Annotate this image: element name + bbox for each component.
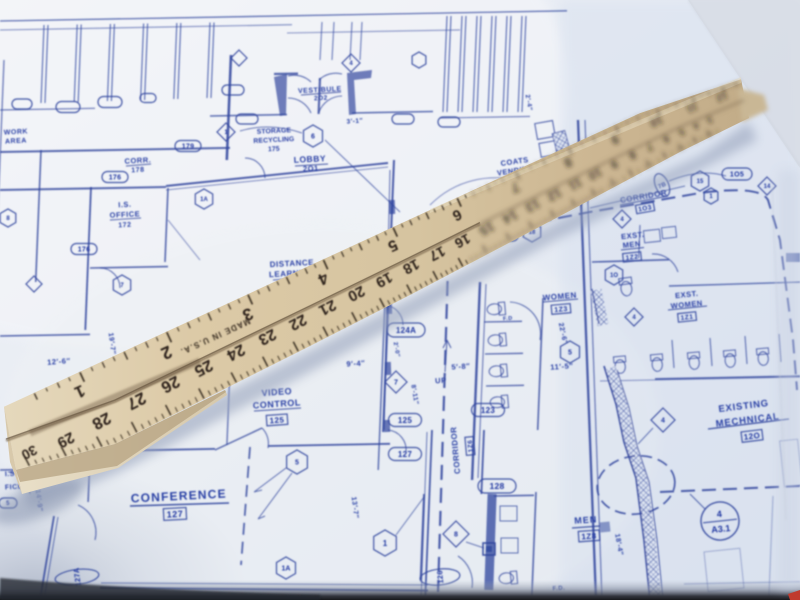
svg-text:123: 123 xyxy=(481,406,495,415)
svg-text:1Z6: 1Z6 xyxy=(467,439,475,452)
svg-text:172: 172 xyxy=(118,222,132,230)
svg-text:AREA: AREA xyxy=(5,137,27,145)
svg-text:1A: 1A xyxy=(282,566,291,573)
svg-text:9′-4″: 9′-4″ xyxy=(346,358,365,368)
svg-text:A3.1: A3.1 xyxy=(711,523,731,535)
svg-text:176: 176 xyxy=(78,247,91,254)
svg-text:15: 15 xyxy=(697,179,704,185)
svg-text:125: 125 xyxy=(269,415,284,425)
svg-text:1Z8: 1Z8 xyxy=(581,531,597,541)
svg-text:1O5: 1O5 xyxy=(730,172,744,179)
svg-text:1Z3: 1Z3 xyxy=(554,306,568,314)
svg-text:1Z1: 1Z1 xyxy=(680,314,693,322)
svg-text:176: 176 xyxy=(109,175,122,182)
svg-text:2O1: 2O1 xyxy=(303,164,319,174)
svg-text:1O: 1O xyxy=(610,273,618,279)
svg-text:4: 4 xyxy=(661,418,665,425)
svg-text:175: 175 xyxy=(268,146,280,154)
svg-text:F.D: F.D xyxy=(503,316,513,323)
svg-text:MEN: MEN xyxy=(574,514,598,526)
svg-text:5′-8″: 5′-8″ xyxy=(451,361,470,371)
svg-text:7: 7 xyxy=(394,380,398,387)
svg-text:14: 14 xyxy=(764,184,771,190)
svg-text:2O2: 2O2 xyxy=(314,95,328,103)
svg-text:6: 6 xyxy=(311,134,315,141)
svg-text:5: 5 xyxy=(295,460,299,467)
svg-text:5: 5 xyxy=(568,350,572,357)
svg-text:1: 1 xyxy=(383,539,388,548)
svg-text:178: 178 xyxy=(131,167,145,175)
svg-text:127: 127 xyxy=(166,509,183,520)
svg-text:I.S.: I.S. xyxy=(118,200,132,210)
svg-text:124A: 124A xyxy=(396,326,416,335)
svg-text:4: 4 xyxy=(716,509,722,519)
svg-text:WORK: WORK xyxy=(4,128,29,136)
svg-text:3′-1″: 3′-1″ xyxy=(346,117,363,125)
svg-text:8: 8 xyxy=(454,532,458,539)
svg-text:1A: 1A xyxy=(200,197,208,203)
svg-text:128: 128 xyxy=(489,481,504,491)
svg-text:12′-6″: 12′-6″ xyxy=(47,356,71,367)
svg-text:127: 127 xyxy=(398,450,412,459)
svg-text:125: 125 xyxy=(398,416,412,425)
